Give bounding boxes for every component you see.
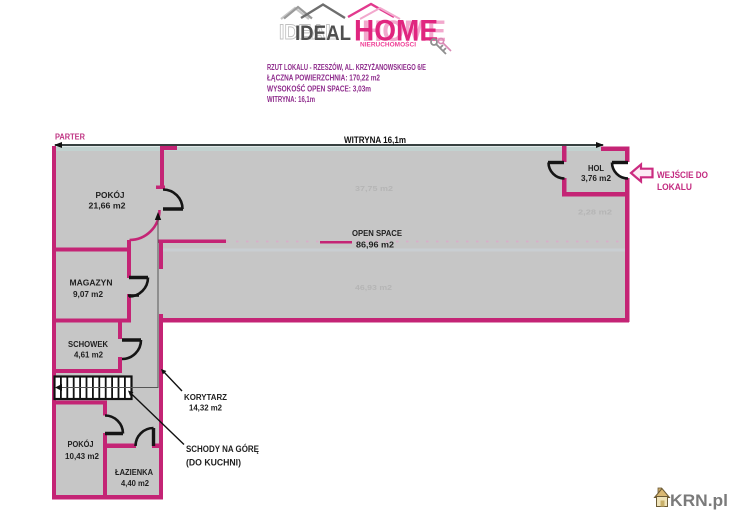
svg-text:RZUT LOKALU - RZESZÓW, AL. KRZ: RZUT LOKALU - RZESZÓW, AL. KRZYŻANOWSKIE… (267, 63, 426, 72)
svg-text:WYSOKOŚĆ OPEN SPACE: 3,03m: WYSOKOŚĆ OPEN SPACE: 3,03m (267, 84, 371, 93)
svg-text:9,07 m2: 9,07 m2 (73, 289, 103, 299)
svg-text:SCHOWEK: SCHOWEK (68, 339, 109, 349)
svg-text:WITRYNA 16,1m: WITRYNA 16,1m (344, 135, 406, 145)
svg-text:HOL: HOL (588, 163, 605, 173)
svg-text:LOKALU: LOKALU (657, 182, 692, 192)
svg-text:ŁĄCZNA POWIERZCHNIA: 170,22 m2: ŁĄCZNA POWIERZCHNIA: 170,22 m2 (267, 74, 380, 83)
svg-text:37,75 m2: 37,75 m2 (355, 184, 393, 193)
svg-text:POKÓJ: POKÓJ (68, 438, 94, 449)
svg-text:14,32 m2: 14,32 m2 (189, 403, 222, 413)
svg-text:SCHODY NA GÓRĘ: SCHODY NA GÓRĘ (186, 443, 259, 454)
svg-text:10,43 m2: 10,43 m2 (65, 451, 99, 461)
svg-text:IDEAL: IDEAL (295, 22, 351, 45)
svg-text:WITRYNA: 16,1m: WITRYNA: 16,1m (267, 95, 315, 104)
svg-text:OPEN SPACE: OPEN SPACE (352, 228, 402, 238)
svg-text:WEJŚCIE DO: WEJŚCIE DO (657, 169, 708, 180)
svg-text:(DO KUCHNI): (DO KUCHNI) (186, 458, 241, 468)
svg-text:KRN.pl: KRN.pl (670, 491, 728, 510)
svg-text:PARTER: PARTER (55, 132, 86, 142)
svg-text:46,93 m2: 46,93 m2 (355, 283, 392, 292)
svg-text:86,96 m2: 86,96 m2 (356, 240, 394, 250)
svg-text:MAGAZYN: MAGAZYN (70, 278, 113, 288)
svg-text:4,61 m2: 4,61 m2 (74, 350, 103, 360)
svg-text:ŁAZIENKA: ŁAZIENKA (115, 467, 154, 477)
svg-text:NIERUCHOMOŚCI: NIERUCHOMOŚCI (360, 42, 416, 49)
svg-text:KORYTARZ: KORYTARZ (184, 392, 228, 402)
svg-text:2,28 m2: 2,28 m2 (578, 208, 612, 217)
svg-text:POKÓJ: POKÓJ (96, 189, 125, 200)
svg-text:4,40 m2: 4,40 m2 (121, 478, 149, 488)
svg-text:21,66 m2: 21,66 m2 (89, 201, 126, 211)
svg-text:3,76 m2: 3,76 m2 (581, 173, 611, 183)
